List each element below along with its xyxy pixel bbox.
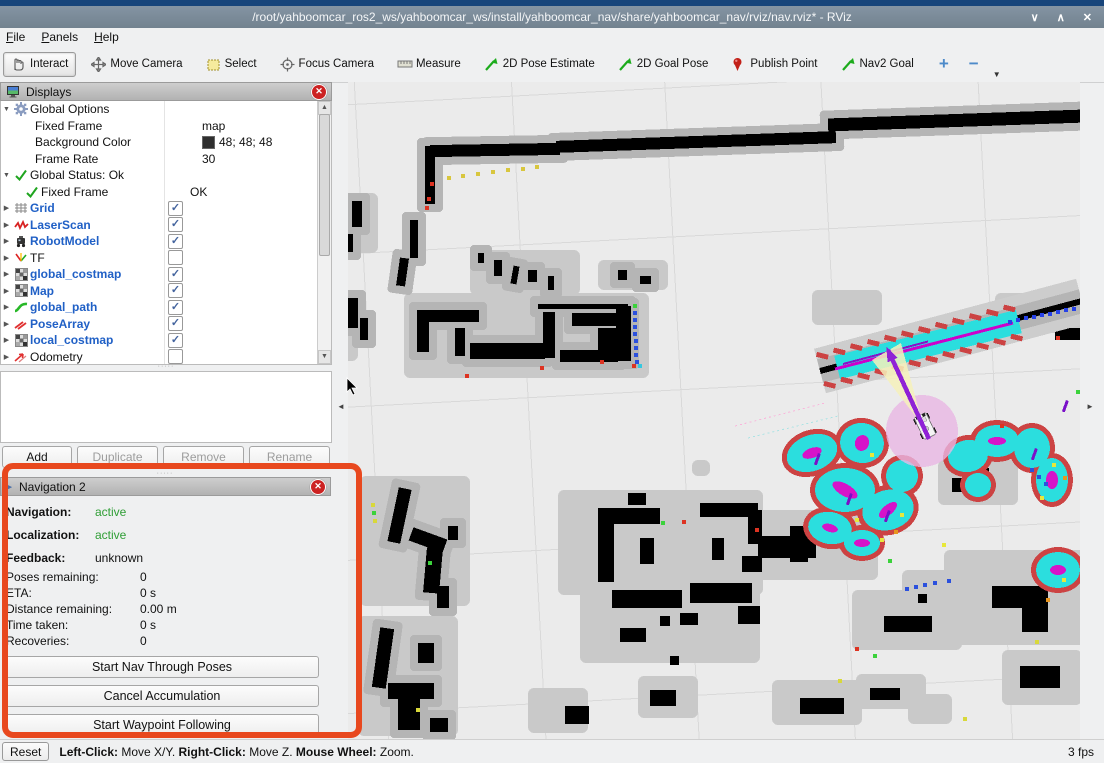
gear-icon: [12, 102, 30, 116]
display-row-value-zone: [164, 349, 331, 364]
display-row-label-zone: ▶Map: [1, 284, 164, 298]
display-name: LaserScan: [30, 218, 91, 232]
tool-label: Publish Point: [750, 58, 817, 70]
tool-focus-camera[interactable]: Focus Camera: [272, 52, 382, 77]
tool-2d-pose-estimate[interactable]: 2D Pose Estimate: [476, 52, 603, 77]
reset-button[interactable]: Reset: [2, 742, 49, 761]
tool-label: 2D Pose Estimate: [503, 58, 595, 70]
display-row-label-zone: ▶global_costmap: [1, 267, 164, 281]
display-checkbox[interactable]: [168, 349, 183, 364]
nav-status-label: Recoveries:: [6, 634, 69, 648]
nav-status-value: active: [95, 528, 126, 542]
move-icon: [91, 57, 106, 72]
path-icon: [12, 300, 30, 314]
nav-status-label: Feedback:: [6, 551, 65, 565]
display-row-value-zone: ✓: [164, 217, 331, 232]
expander-icon[interactable]: ▼: [1, 172, 12, 179]
nav-status-value: unknown: [95, 551, 143, 565]
property-value[interactable]: 30: [202, 152, 215, 166]
shade-window-icon[interactable]: ∨: [1031, 11, 1039, 24]
toolbar-overflow-icon[interactable]: ▼: [993, 70, 1001, 82]
display-name: global_path: [30, 300, 97, 314]
expander-icon[interactable]: ▶: [1, 303, 12, 311]
nav-status-row: Feedback:unknown: [0, 546, 330, 569]
right-panel-expand-icon[interactable]: ►: [1086, 402, 1094, 411]
display-row-global-options[interactable]: ▼Global Options: [1, 101, 331, 118]
start-waypoint-following-button[interactable]: Start Waypoint Following: [5, 714, 319, 736]
scroll-down-icon[interactable]: ▼: [318, 350, 331, 364]
display-row-value-zone: ✓: [164, 300, 331, 315]
property-value[interactable]: 48; 48; 48: [219, 135, 272, 149]
display-row-global-path[interactable]: ▶global_path✓: [1, 299, 331, 316]
ruler-icon: [397, 57, 412, 72]
mouse-hints: Left-Click: Move X/Y. Right-Click: Move …: [59, 745, 414, 759]
display-row-label-zone: ▶PoseArray: [1, 317, 164, 331]
nav-status-label: Time taken:: [6, 618, 68, 632]
display-checkbox[interactable]: ✓: [168, 316, 183, 331]
nav-status-row: Time taken:0 s: [0, 617, 330, 633]
display-name: TF: [30, 251, 45, 265]
display-row-value-zone: ✓: [164, 283, 331, 298]
nav-status-row: Localization:active: [0, 523, 330, 546]
expander-icon[interactable]: ▶: [1, 254, 12, 262]
add-tool-button[interactable]: +: [929, 54, 959, 74]
display-row-label-zone: ▶global_path: [1, 300, 164, 314]
display-name: global_costmap: [30, 267, 121, 281]
display-checkbox[interactable]: ✓: [168, 201, 183, 216]
menu-file[interactable]: File: [6, 30, 25, 44]
main-area: Displays ✕ ▼Global OptionsFixed Framemap…: [0, 82, 1104, 740]
display-row-value-zone: ✓: [164, 234, 331, 249]
expander-icon[interactable]: ▶: [1, 204, 12, 212]
menu-bar: FilePanelsHelp: [0, 28, 1104, 46]
navigation-panel-body: Navigation:activeLocalization:activeFeed…: [0, 496, 330, 736]
display-row-label-zone: ▼Global Options: [1, 102, 164, 116]
display-row-label-zone: Background Color: [1, 135, 198, 149]
display-row-map[interactable]: ▶Map✓: [1, 283, 331, 300]
nav-status-value: 0 s: [140, 586, 156, 600]
display-name: Background Color: [35, 135, 131, 149]
display-row-value-zone: ✓: [164, 316, 331, 331]
property-value[interactable]: OK: [190, 185, 207, 199]
display-checkbox[interactable]: [168, 250, 183, 265]
robot-icon: [12, 234, 30, 248]
display-row-global-status-ok[interactable]: ▼Global Status: Ok: [1, 167, 331, 184]
display-row-odometry[interactable]: ▶Odometry: [1, 349, 331, 366]
nav-status-row: Recoveries:0: [0, 633, 330, 649]
tool-label: Move Camera: [110, 58, 182, 70]
display-row-posearray[interactable]: ▶PoseArray✓: [1, 316, 331, 333]
navigation-panel-title: Navigation 2: [19, 480, 86, 494]
window-controls: ∨∧✕: [1031, 6, 1092, 28]
menu-panels[interactable]: Panels: [41, 30, 78, 44]
costmap-icon: [12, 284, 30, 298]
laserscan-icon: [12, 218, 30, 232]
tool-measure[interactable]: Measure: [389, 52, 469, 77]
navigation-panel: ····· ▶ Navigation 2 ✕ Navigation:active…: [0, 472, 330, 736]
start-nav-through-poses-button[interactable]: Start Nav Through Poses: [5, 656, 319, 678]
display-name: PoseArray: [30, 317, 90, 331]
left-panel-column: Displays ✕ ▼Global OptionsFixed Framemap…: [0, 82, 332, 740]
nav-status-value: 0 s: [140, 618, 156, 632]
tool-publish-point[interactable]: Publish Point: [723, 52, 825, 77]
display-row-value-zone: ✓: [164, 201, 331, 216]
display-row-laserscan[interactable]: ▶LaserScan✓: [1, 217, 331, 234]
pin-icon: [731, 57, 746, 72]
display-name: Odometry: [30, 350, 83, 364]
display-name: Global Options: [30, 102, 109, 116]
nav-status-row: Distance remaining:0.00 m: [0, 601, 330, 617]
color-swatch[interactable]: [202, 136, 215, 149]
displays-button-row: AddDuplicateRemoveRename: [0, 443, 332, 471]
display-row-fixed-frame[interactable]: Fixed FrameOK: [1, 184, 331, 201]
displays-panel-title: Displays: [26, 85, 71, 99]
display-row-fixed-frame[interactable]: Fixed Framemap: [1, 118, 331, 135]
expander-icon[interactable]: ▶: [1, 221, 12, 229]
window-title: /root/yahboomcar_ros2_ws/yahboomcar_ws/i…: [252, 10, 852, 24]
expander-icon[interactable]: ▶: [1, 320, 12, 328]
display-row-value-zone: 30: [198, 152, 331, 166]
tool-move-camera[interactable]: Move Camera: [83, 52, 190, 77]
navigation-panel-header[interactable]: ▶ Navigation 2 ✕: [0, 477, 331, 496]
display-row-label-zone: Fixed Frame: [1, 185, 186, 199]
nav-status-label: Localization:: [6, 528, 79, 542]
display-checkbox[interactable]: ✓: [168, 300, 183, 315]
fps-counter: 3 fps: [1068, 745, 1094, 759]
display-row-label-zone: ▶local_costmap: [1, 333, 164, 347]
tf-icon: [12, 251, 30, 265]
display-row-label-zone: Frame Rate: [1, 152, 198, 166]
tool-label: Nav2 Goal: [860, 58, 914, 70]
display-checkbox[interactable]: ✓: [168, 267, 183, 282]
nav-status-label: Poses remaining:: [6, 570, 99, 584]
display-name: Fixed Frame: [35, 119, 102, 133]
display-row-value-zone: 48; 48; 48: [198, 135, 331, 149]
tool-label: Interact: [30, 58, 68, 70]
status-bar: Reset Left-Click: Move X/Y. Right-Click:…: [0, 739, 1104, 763]
menu-help[interactable]: Help: [94, 30, 119, 44]
display-row-label-zone: ▶LaserScan: [1, 218, 164, 232]
display-row-value-zone: ✓: [164, 333, 331, 348]
display-row-label-zone: ▶Grid: [1, 201, 164, 215]
property-detail-box: [0, 371, 332, 443]
duplicate-button[interactable]: Duplicate: [77, 446, 158, 468]
displays-icon: [4, 85, 22, 99]
display-row-global-costmap[interactable]: ▶global_costmap✓: [1, 266, 331, 283]
display-checkbox[interactable]: ✓: [168, 333, 183, 348]
displays-tree[interactable]: ▼Global OptionsFixed FramemapBackground …: [0, 101, 332, 365]
tool-label: Focus Camera: [299, 58, 374, 70]
display-row-label-zone: ▼Global Status: Ok: [1, 168, 164, 182]
left-panel-collapse-icon[interactable]: ◄: [337, 402, 345, 411]
tool-nav2-goal[interactable]: Nav2 Goal: [833, 52, 922, 77]
nav-status-value: 0.00 m: [140, 602, 177, 616]
expander-icon[interactable]: ▼: [1, 106, 12, 113]
maximize-window-icon[interactable]: ∧: [1057, 11, 1065, 24]
display-row-value-zone: ✓: [164, 267, 331, 282]
display-row-label-zone: ▶RobotModel: [1, 234, 164, 248]
remove-tool-button[interactable]: −: [959, 54, 989, 74]
display-row-tf[interactable]: ▶TF: [1, 250, 331, 267]
panel-expander-icon[interactable]: ▶: [4, 483, 15, 491]
nav-status-label: Navigation:: [6, 505, 71, 519]
navigation-close-button[interactable]: ✕: [310, 479, 326, 495]
title-bar[interactable]: /root/yahboomcar_ros2_ws/yahboomcar_ws/i…: [0, 6, 1104, 28]
display-checkbox[interactable]: ✓: [168, 234, 183, 249]
green-arrow-icon: [484, 57, 499, 72]
tool-label: Select: [225, 58, 257, 70]
scrollbar-thumb[interactable]: [319, 114, 330, 256]
3d-viewport[interactable]: [348, 82, 1080, 740]
display-row-background-color[interactable]: Background Color48; 48; 48: [1, 134, 331, 151]
display-row-value-zone: map: [198, 119, 331, 133]
displays-scrollbar[interactable]: ▲ ▼: [317, 101, 331, 364]
odometry-icon: [12, 350, 30, 364]
expander-icon[interactable]: ▶: [1, 287, 12, 295]
rename-button[interactable]: Rename: [249, 446, 330, 468]
green-arrow-icon: [618, 57, 633, 72]
scroll-up-icon[interactable]: ▲: [318, 101, 331, 115]
check-icon: [12, 168, 30, 182]
display-row-label-zone: ▶Odometry: [1, 350, 164, 364]
nav-status-label: ETA:: [6, 586, 32, 600]
display-row-value-zone: OK: [186, 185, 331, 199]
tool-select[interactable]: Select: [198, 52, 265, 77]
costmap-icon: [12, 267, 30, 281]
posearray-icon: [12, 317, 30, 331]
remove-button[interactable]: Remove: [163, 446, 244, 468]
display-row-grid[interactable]: ▶Grid✓: [1, 200, 331, 217]
nav-status-value: active: [95, 505, 126, 519]
cancel-accumulation-button[interactable]: Cancel Accumulation: [5, 685, 319, 707]
display-row-label-zone: Fixed Frame: [1, 119, 198, 133]
green-arrow-icon: [841, 57, 856, 72]
property-column-divider: [164, 101, 165, 364]
display-name: Map: [30, 284, 54, 298]
display-checkbox[interactable]: ✓: [168, 283, 183, 298]
nav-status-value: 0: [140, 570, 147, 584]
focus-icon: [280, 57, 295, 72]
display-name: local_costmap: [30, 333, 113, 347]
displays-close-button[interactable]: ✕: [311, 84, 327, 100]
tool-bar: InteractMove CameraSelectFocus CameraMea…: [0, 46, 1104, 83]
hand-icon: [11, 57, 26, 72]
nav-status-label: Distance remaining:: [6, 602, 112, 616]
display-name: Frame Rate: [35, 152, 98, 166]
display-name: RobotModel: [30, 234, 99, 248]
display-row-label-zone: ▶TF: [1, 251, 164, 265]
grid-icon: [12, 201, 30, 215]
nav-status-row: ETA:0 s: [0, 585, 330, 601]
display-name: Grid: [30, 201, 55, 215]
costmap-icon: [12, 333, 30, 347]
tool-2d-goal-pose[interactable]: 2D Goal Pose: [610, 52, 717, 77]
display-row-local-costmap[interactable]: ▶local_costmap✓: [1, 332, 331, 349]
display-row-frame-rate[interactable]: Frame Rate30: [1, 151, 331, 168]
expander-icon[interactable]: ▶: [1, 336, 12, 344]
tool-label: 2D Goal Pose: [637, 58, 709, 70]
expander-icon[interactable]: ▶: [1, 270, 12, 278]
display-checkbox[interactable]: ✓: [168, 217, 183, 232]
nav-status-value: 0: [140, 634, 147, 648]
nav-status-row: Poses remaining:0: [0, 569, 330, 585]
panel-splitter[interactable]: ·····: [0, 365, 332, 370]
close-window-icon[interactable]: ✕: [1083, 11, 1092, 24]
expander-icon[interactable]: ▶: [1, 353, 12, 361]
display-row-robotmodel[interactable]: ▶RobotModel✓: [1, 233, 331, 250]
tool-label: Measure: [416, 58, 461, 70]
check-icon: [23, 185, 41, 199]
select-box-icon: [206, 57, 221, 72]
nav-status-row: Navigation:active: [0, 500, 330, 523]
display-name: Global Status: Ok: [30, 168, 124, 182]
display-name: Fixed Frame: [41, 185, 108, 199]
property-value[interactable]: map: [202, 119, 225, 133]
tool-interact[interactable]: Interact: [3, 52, 76, 77]
displays-panel-header[interactable]: Displays ✕: [0, 82, 332, 101]
expander-icon[interactable]: ▶: [1, 237, 12, 245]
display-row-value-zone: [164, 250, 331, 265]
add-button[interactable]: Add: [2, 446, 72, 468]
